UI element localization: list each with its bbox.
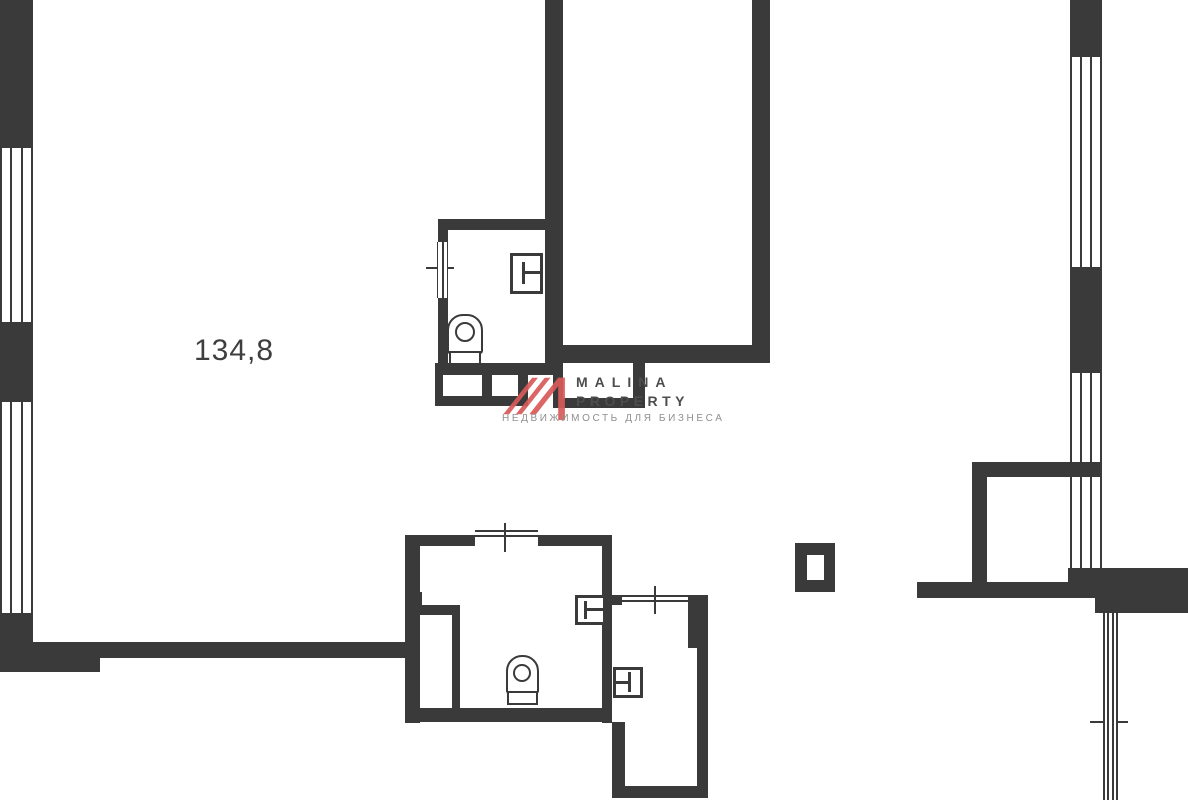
wall-tallroom-right [752, 0, 770, 363]
wall-bath1-top-a [405, 535, 475, 546]
wall-bath1-top-b [538, 535, 612, 546]
wall-tallroom-left [545, 0, 563, 375]
wall-ext-left-top [0, 0, 33, 148]
wall-annex-left [972, 462, 987, 582]
toilet-lower-tank [507, 691, 538, 705]
bath0-riser-strip-mullion [442, 242, 444, 298]
wall-tallroom-bottom [563, 345, 752, 363]
window-left-2 [0, 402, 33, 613]
door-bath2-handle [628, 672, 631, 692]
wall-ext-left-mid [0, 322, 33, 402]
area-label: 134,8 [194, 334, 274, 368]
window-left-1 [0, 148, 33, 322]
bath1-riser-tick [504, 523, 506, 552]
wall-right-band [917, 582, 1095, 598]
malina-property-watermark: MALINA PROPERTY НЕДВИЖИМОСТЬ ДЛЯ БИЗНЕСА [497, 366, 737, 428]
glazing-bottom-right-mullion [1107, 613, 1109, 800]
wall-ext-right-top [1070, 0, 1102, 57]
wall-bath2-right-stub [688, 595, 708, 648]
pillar-inner [807, 555, 824, 580]
window-left-2-mullion [10, 402, 12, 613]
wall-bath1-left [405, 535, 420, 723]
window-right-3-mullion [1090, 477, 1092, 568]
window-right-2-mullion [1090, 373, 1092, 462]
wall-bath1-shaft-right [452, 605, 460, 715]
wall-right-block [1095, 568, 1188, 613]
wall-bath2-right [697, 648, 708, 798]
window-left-2-mullion [21, 402, 23, 613]
window-left-1-mullion [21, 148, 23, 322]
glazing-bottom-right [1103, 613, 1118, 800]
window-right-1 [1070, 57, 1102, 267]
toilet-upper-bowl [455, 322, 475, 342]
door-bath1-handle [586, 608, 603, 611]
logo-brand-name-2: PROPERTY [576, 393, 689, 409]
logo-tagline: НЕДВИЖИМОСТЬ ДЛЯ БИЗНЕСА [502, 413, 724, 424]
window-right-3 [1070, 477, 1102, 568]
wall-ext-right-mid [1070, 267, 1102, 373]
door-upper-bath-handle [524, 271, 542, 274]
wall-bath0-top [438, 219, 547, 230]
wall-bath0-left-upper [438, 230, 448, 242]
bath1-opening-line [475, 530, 538, 532]
window-right-1-mullion [1080, 57, 1082, 267]
wall-bath0-niche-right [482, 375, 492, 396]
window-left-1-mullion [10, 148, 12, 322]
floor-plan: 134,8 MALINA PROPERTY НЕДВИЖИМОСТЬ ДЛЯ Б… [0, 0, 1188, 800]
window-right-3-mullion [1080, 477, 1082, 568]
window-right-2-mullion [1080, 373, 1082, 462]
window-right-1-mullion [1090, 57, 1092, 267]
wall-bath2-top [612, 595, 622, 605]
wall-bath1-bottom [405, 708, 612, 722]
wall-bath2-bottom [612, 786, 708, 798]
window-right-2 [1070, 373, 1102, 462]
wall-right-step [1068, 568, 1095, 582]
bath1-opening-line [475, 535, 538, 537]
wall-ext-right-low [1070, 462, 1102, 477]
wall-bath1-right [602, 535, 612, 723]
toilet-lower-bowl [513, 664, 531, 682]
logo-brand-name: MALINA [576, 374, 672, 390]
toilet-upper-tank [449, 351, 481, 365]
glazing-bottom-right-mullion [1112, 613, 1114, 800]
wall-bottom-band-thick [0, 642, 100, 672]
wall-bath1-left-notch [405, 592, 422, 605]
bath2-riser-tick [654, 586, 656, 614]
